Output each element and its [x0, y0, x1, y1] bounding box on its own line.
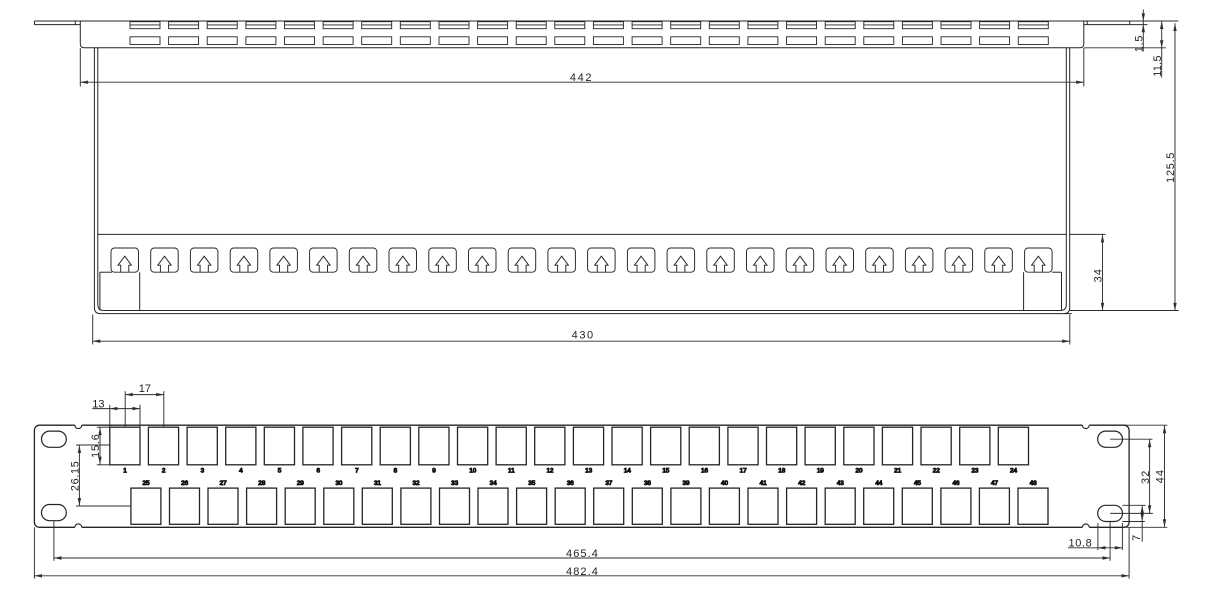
- svg-text:23: 23: [971, 467, 978, 474]
- svg-text:17: 17: [740, 467, 747, 474]
- svg-text:43: 43: [837, 480, 844, 487]
- svg-text:20: 20: [855, 467, 862, 474]
- svg-text:4: 4: [239, 467, 243, 474]
- svg-text:36: 36: [567, 480, 574, 487]
- svg-text:16: 16: [701, 467, 708, 474]
- svg-text:44: 44: [1155, 469, 1167, 483]
- svg-text:19: 19: [817, 467, 824, 474]
- svg-text:27: 27: [220, 480, 227, 487]
- svg-text:41: 41: [760, 480, 767, 487]
- svg-text:10.8: 10.8: [1068, 537, 1092, 549]
- svg-text:42: 42: [798, 480, 805, 487]
- svg-text:465.4: 465.4: [566, 548, 599, 560]
- svg-text:32: 32: [412, 480, 419, 487]
- svg-text:11.5: 11.5: [1152, 55, 1164, 76]
- svg-text:125.5: 125.5: [1165, 152, 1177, 183]
- svg-text:25: 25: [142, 480, 149, 487]
- svg-text:3: 3: [200, 467, 204, 474]
- svg-text:1: 1: [123, 467, 127, 474]
- svg-text:34: 34: [490, 480, 497, 487]
- svg-text:21: 21: [894, 467, 901, 474]
- svg-text:40: 40: [721, 480, 728, 487]
- svg-text:26.15: 26.15: [70, 461, 82, 492]
- svg-text:45: 45: [914, 480, 921, 487]
- svg-text:35: 35: [528, 480, 535, 487]
- svg-text:13: 13: [92, 399, 104, 411]
- svg-text:29: 29: [297, 480, 304, 487]
- svg-text:11: 11: [508, 467, 515, 474]
- svg-text:13: 13: [585, 467, 592, 474]
- svg-text:44: 44: [875, 480, 882, 487]
- svg-text:1.5: 1.5: [1133, 35, 1145, 52]
- svg-text:48: 48: [1030, 480, 1037, 487]
- svg-text:30: 30: [335, 480, 342, 487]
- svg-text:47: 47: [991, 480, 998, 487]
- svg-text:442: 442: [570, 72, 593, 84]
- svg-text:34: 34: [1093, 268, 1105, 282]
- svg-text:7: 7: [1131, 535, 1143, 541]
- svg-text:12: 12: [546, 467, 553, 474]
- svg-text:32: 32: [1140, 470, 1152, 484]
- svg-text:10: 10: [469, 467, 476, 474]
- svg-text:38: 38: [644, 480, 651, 487]
- svg-text:5: 5: [278, 467, 282, 474]
- svg-text:31: 31: [374, 480, 381, 487]
- svg-text:9: 9: [432, 467, 436, 474]
- svg-text:33: 33: [451, 480, 458, 487]
- svg-text:18: 18: [778, 467, 785, 474]
- svg-text:22: 22: [933, 467, 940, 474]
- svg-text:7: 7: [355, 467, 359, 474]
- svg-text:6: 6: [316, 467, 320, 474]
- svg-text:8: 8: [394, 467, 398, 474]
- svg-text:482.4: 482.4: [566, 566, 599, 578]
- svg-text:37: 37: [605, 480, 612, 487]
- svg-text:14: 14: [624, 467, 631, 474]
- svg-text:2: 2: [162, 467, 166, 474]
- svg-text:24: 24: [1010, 467, 1017, 474]
- svg-text:39: 39: [682, 480, 689, 487]
- svg-text:430: 430: [572, 330, 595, 342]
- svg-text:46: 46: [952, 480, 959, 487]
- svg-text:17: 17: [139, 383, 151, 395]
- svg-text:15: 15: [662, 467, 669, 474]
- svg-text:26: 26: [181, 480, 188, 487]
- svg-text:28: 28: [258, 480, 265, 487]
- svg-text:15.6: 15.6: [90, 433, 102, 458]
